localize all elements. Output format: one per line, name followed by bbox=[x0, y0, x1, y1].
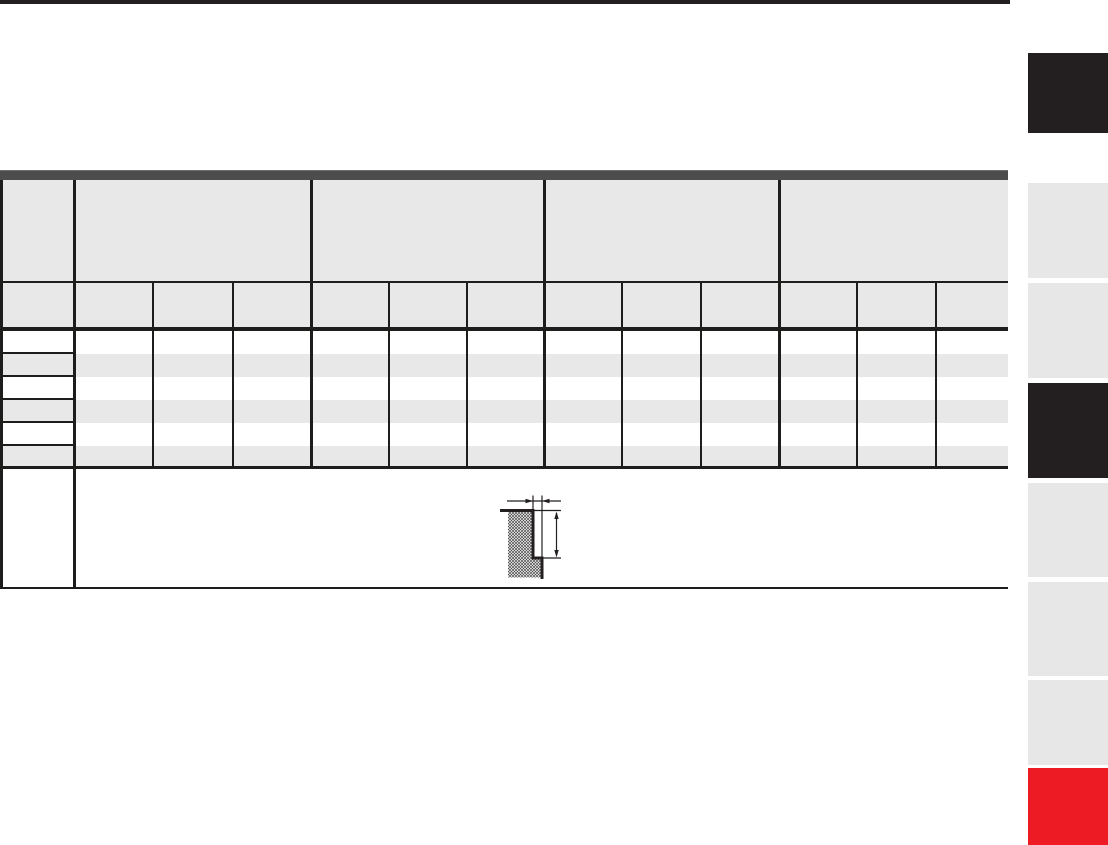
table-data-cell bbox=[152, 331, 232, 354]
table-data-cell bbox=[621, 423, 700, 446]
table-data-cell bbox=[152, 423, 232, 446]
table-data-cell bbox=[388, 377, 466, 400]
table-data-cell bbox=[310, 423, 388, 446]
table-data-cell bbox=[73, 400, 152, 423]
table-data-cell bbox=[466, 377, 543, 400]
table-data-cell bbox=[856, 446, 935, 469]
table-data-cell bbox=[310, 446, 388, 469]
table-data-cell bbox=[935, 446, 1008, 469]
table-data-cell bbox=[388, 354, 466, 377]
table-data-cell bbox=[856, 354, 935, 377]
table-subheader-cell bbox=[388, 283, 466, 331]
table-data-cell bbox=[700, 400, 778, 423]
table-data-cell bbox=[778, 423, 856, 446]
table-data-cell bbox=[700, 354, 778, 377]
table-data-cell bbox=[232, 400, 310, 423]
table-row-label-cell bbox=[0, 446, 73, 469]
table-corner-cell bbox=[0, 180, 73, 283]
table-data-cell bbox=[232, 331, 310, 354]
table-data-cell bbox=[73, 331, 152, 354]
table-data-cell bbox=[388, 331, 466, 354]
table-title-strip bbox=[0, 170, 1008, 180]
table-group-header bbox=[73, 180, 310, 283]
table-data-cell bbox=[856, 423, 935, 446]
table-subheader-cell bbox=[73, 283, 152, 331]
table-data-cell bbox=[73, 423, 152, 446]
table-data-cell bbox=[310, 331, 388, 354]
edge-tab-column bbox=[1028, 0, 1108, 845]
table-data-cell bbox=[232, 377, 310, 400]
table-data-cell bbox=[700, 331, 778, 354]
table-data-cell bbox=[621, 331, 700, 354]
table-subheader-cell bbox=[700, 283, 778, 331]
catalog-page bbox=[0, 0, 1108, 845]
edge-tab-3 bbox=[1028, 283, 1108, 378]
table-subheader-cell bbox=[543, 283, 621, 331]
table-data-cell bbox=[310, 354, 388, 377]
table-data-cell bbox=[543, 423, 621, 446]
table-subheader-cell bbox=[466, 283, 543, 331]
catalog-table bbox=[0, 170, 1008, 589]
table-data-cell bbox=[466, 446, 543, 469]
table-data-cell bbox=[700, 377, 778, 400]
table-data-cell bbox=[232, 354, 310, 377]
table-group-header bbox=[543, 180, 778, 283]
table-data-cell bbox=[232, 423, 310, 446]
table-subheader-cell bbox=[621, 283, 700, 331]
table-data-cell bbox=[152, 400, 232, 423]
table-data-cell bbox=[232, 446, 310, 469]
table-data-cell bbox=[935, 377, 1008, 400]
table-data-cell bbox=[856, 377, 935, 400]
table-row-label-cell bbox=[0, 354, 73, 377]
edge-tab-5 bbox=[1028, 483, 1108, 577]
table-bottom-left-cell bbox=[0, 469, 73, 589]
table-data-cell bbox=[621, 400, 700, 423]
edge-tab-7 bbox=[1028, 680, 1108, 765]
table-row-label-cell bbox=[0, 377, 73, 400]
edge-tab-1 bbox=[1028, 53, 1108, 133]
table-row-label-cell bbox=[0, 331, 73, 354]
table-subheader-first-cell bbox=[0, 283, 73, 331]
edge-tab-4 bbox=[1028, 383, 1108, 478]
table-data-cell bbox=[152, 446, 232, 469]
table-data-cell bbox=[621, 354, 700, 377]
table-data-cell bbox=[856, 400, 935, 423]
table-data-cell bbox=[543, 354, 621, 377]
groove-cross-section-diagram bbox=[493, 492, 573, 584]
table-data-cell bbox=[543, 377, 621, 400]
table-data-cell bbox=[73, 446, 152, 469]
table-data-cell bbox=[388, 423, 466, 446]
table-row-label-cell bbox=[0, 400, 73, 423]
table-data-cell bbox=[466, 400, 543, 423]
table-subheader-cell bbox=[935, 283, 1008, 331]
table-data-cell bbox=[778, 400, 856, 423]
table-data-cell bbox=[543, 400, 621, 423]
table-subheader-cell bbox=[856, 283, 935, 331]
table-row-label-cell bbox=[0, 423, 73, 446]
table-subheader-cell bbox=[310, 283, 388, 331]
table-data-cell bbox=[778, 446, 856, 469]
table-group-header bbox=[778, 180, 1008, 283]
table-data-cell bbox=[466, 423, 543, 446]
table-data-cell bbox=[778, 331, 856, 354]
table-data-cell bbox=[778, 354, 856, 377]
table-data-cell bbox=[935, 423, 1008, 446]
top-rule-bar bbox=[0, 0, 1010, 4]
table-data-cell bbox=[543, 446, 621, 469]
catalog-table-grid bbox=[0, 180, 1008, 589]
edge-tab-6 bbox=[1028, 582, 1108, 676]
edge-tab-8 bbox=[1028, 768, 1108, 845]
table-data-cell bbox=[700, 423, 778, 446]
table-data-cell bbox=[73, 377, 152, 400]
edge-tab-2 bbox=[1028, 183, 1108, 278]
table-data-cell bbox=[935, 331, 1008, 354]
table-data-cell bbox=[466, 354, 543, 377]
table-data-cell bbox=[935, 400, 1008, 423]
table-data-cell bbox=[388, 400, 466, 423]
table-subheader-cell bbox=[232, 283, 310, 331]
table-data-cell bbox=[543, 331, 621, 354]
table-data-cell bbox=[935, 354, 1008, 377]
table-data-cell bbox=[621, 446, 700, 469]
table-data-cell bbox=[856, 331, 935, 354]
table-subheader-cell bbox=[778, 283, 856, 331]
hatched-material-section bbox=[508, 511, 541, 578]
table-data-cell bbox=[73, 354, 152, 377]
table-diagram-cell bbox=[73, 469, 1008, 589]
table-data-cell bbox=[778, 377, 856, 400]
table-data-cell bbox=[466, 331, 543, 354]
table-data-cell bbox=[310, 400, 388, 423]
table-data-cell bbox=[388, 446, 466, 469]
table-data-cell bbox=[310, 377, 388, 400]
table-data-cell bbox=[700, 446, 778, 469]
table-data-cell bbox=[152, 377, 232, 400]
table-group-header bbox=[310, 180, 543, 283]
table-data-cell bbox=[621, 377, 700, 400]
table-data-cell bbox=[152, 354, 232, 377]
table-subheader-cell bbox=[152, 283, 232, 331]
